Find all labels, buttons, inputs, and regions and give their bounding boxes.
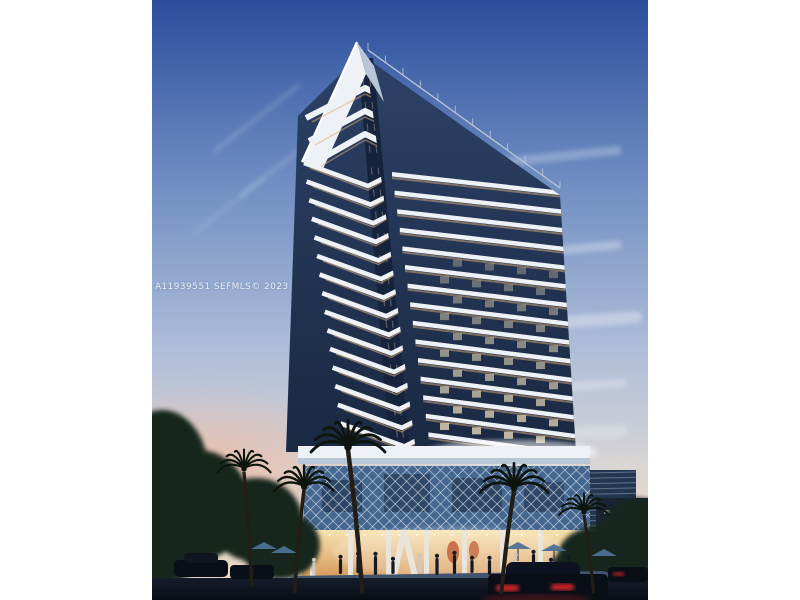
palm-crown: [344, 443, 352, 451]
pedestrian: [452, 551, 456, 574]
ceiling-light: [538, 534, 540, 536]
ceiling-light: [416, 534, 418, 536]
ceiling-light: [363, 534, 365, 536]
lit-window: [536, 362, 545, 369]
lit-window: [504, 395, 513, 402]
ceiling-light: [556, 534, 558, 536]
property-rendering-photo: A11939551 SEFMLS© 2023: [152, 0, 648, 600]
pedestrian: [338, 555, 342, 574]
lit-window: [440, 423, 449, 430]
taillight: [551, 584, 574, 590]
lit-window: [440, 386, 449, 393]
lit-window: [517, 341, 526, 348]
pedestrian: [312, 558, 316, 575]
ceiling-light: [468, 534, 470, 536]
ceiling-light: [398, 534, 400, 536]
lit-window: [549, 271, 558, 278]
lit-window: [472, 280, 481, 287]
lit-window: [549, 308, 558, 315]
lit-window: [504, 321, 513, 328]
lit-window: [440, 350, 449, 357]
lit-window: [453, 370, 462, 377]
lit-window: [517, 304, 526, 311]
ceiling-light: [451, 534, 453, 536]
left-white-margin: [0, 0, 152, 600]
palm-crown: [511, 485, 518, 492]
lit-window: [536, 325, 545, 332]
lit-window: [517, 378, 526, 385]
pedestrian: [373, 552, 377, 575]
lit-window: [472, 354, 481, 361]
lit-window: [472, 391, 481, 398]
podium-lattice-screen: [304, 466, 590, 530]
lit-window: [536, 399, 545, 406]
right-white-margin: [648, 0, 800, 600]
podium-roof-slab-shadow: [298, 458, 590, 464]
lit-window: [485, 374, 494, 381]
lit-window: [453, 333, 462, 340]
palm-crown: [301, 484, 307, 490]
lit-window: [536, 288, 545, 295]
lit-window: [485, 337, 494, 344]
ceiling-light: [328, 534, 330, 536]
lit-window: [453, 260, 462, 267]
lit-window: [517, 415, 526, 422]
lit-window: [453, 406, 462, 413]
lit-window: [440, 277, 449, 284]
ceiling-light: [381, 534, 383, 536]
palm-crown: [581, 509, 586, 514]
lit-window: [472, 317, 481, 324]
ceiling-light: [346, 534, 348, 536]
storefront-column: [424, 530, 429, 576]
storefront-column: [462, 530, 467, 576]
listing-photo-page: A11939551 SEFMLS© 2023: [0, 0, 800, 600]
lit-window: [549, 345, 558, 352]
lit-window: [485, 411, 494, 418]
ceiling-light: [521, 534, 523, 536]
palm-crown: [241, 466, 246, 471]
lit-window: [504, 358, 513, 365]
pedestrian: [391, 557, 395, 574]
pedestrian: [435, 554, 439, 575]
lit-window: [453, 296, 462, 303]
pedestrian: [487, 556, 491, 575]
ceiling-light: [486, 534, 488, 536]
lit-window: [485, 263, 494, 270]
lit-window: [549, 382, 558, 389]
taillight: [613, 572, 624, 576]
lit-window: [485, 300, 494, 307]
lit-window: [504, 432, 513, 439]
lit-window: [440, 313, 449, 320]
lit-window: [472, 427, 481, 434]
pedestrian: [417, 554, 421, 573]
storefront-column: [348, 530, 353, 576]
lit-window: [549, 419, 558, 426]
pedestrian: [470, 556, 474, 573]
lit-window: [517, 267, 526, 274]
mls-watermark: A11939551 SEFMLS© 2023: [155, 282, 288, 292]
lit-window: [504, 284, 513, 291]
car-far-right: [608, 567, 648, 582]
ceiling-light: [433, 534, 435, 536]
storefront-column: [386, 530, 391, 576]
ceiling-light: [503, 534, 505, 536]
taillight: [496, 585, 519, 591]
podium-roof-slab: [298, 446, 590, 458]
